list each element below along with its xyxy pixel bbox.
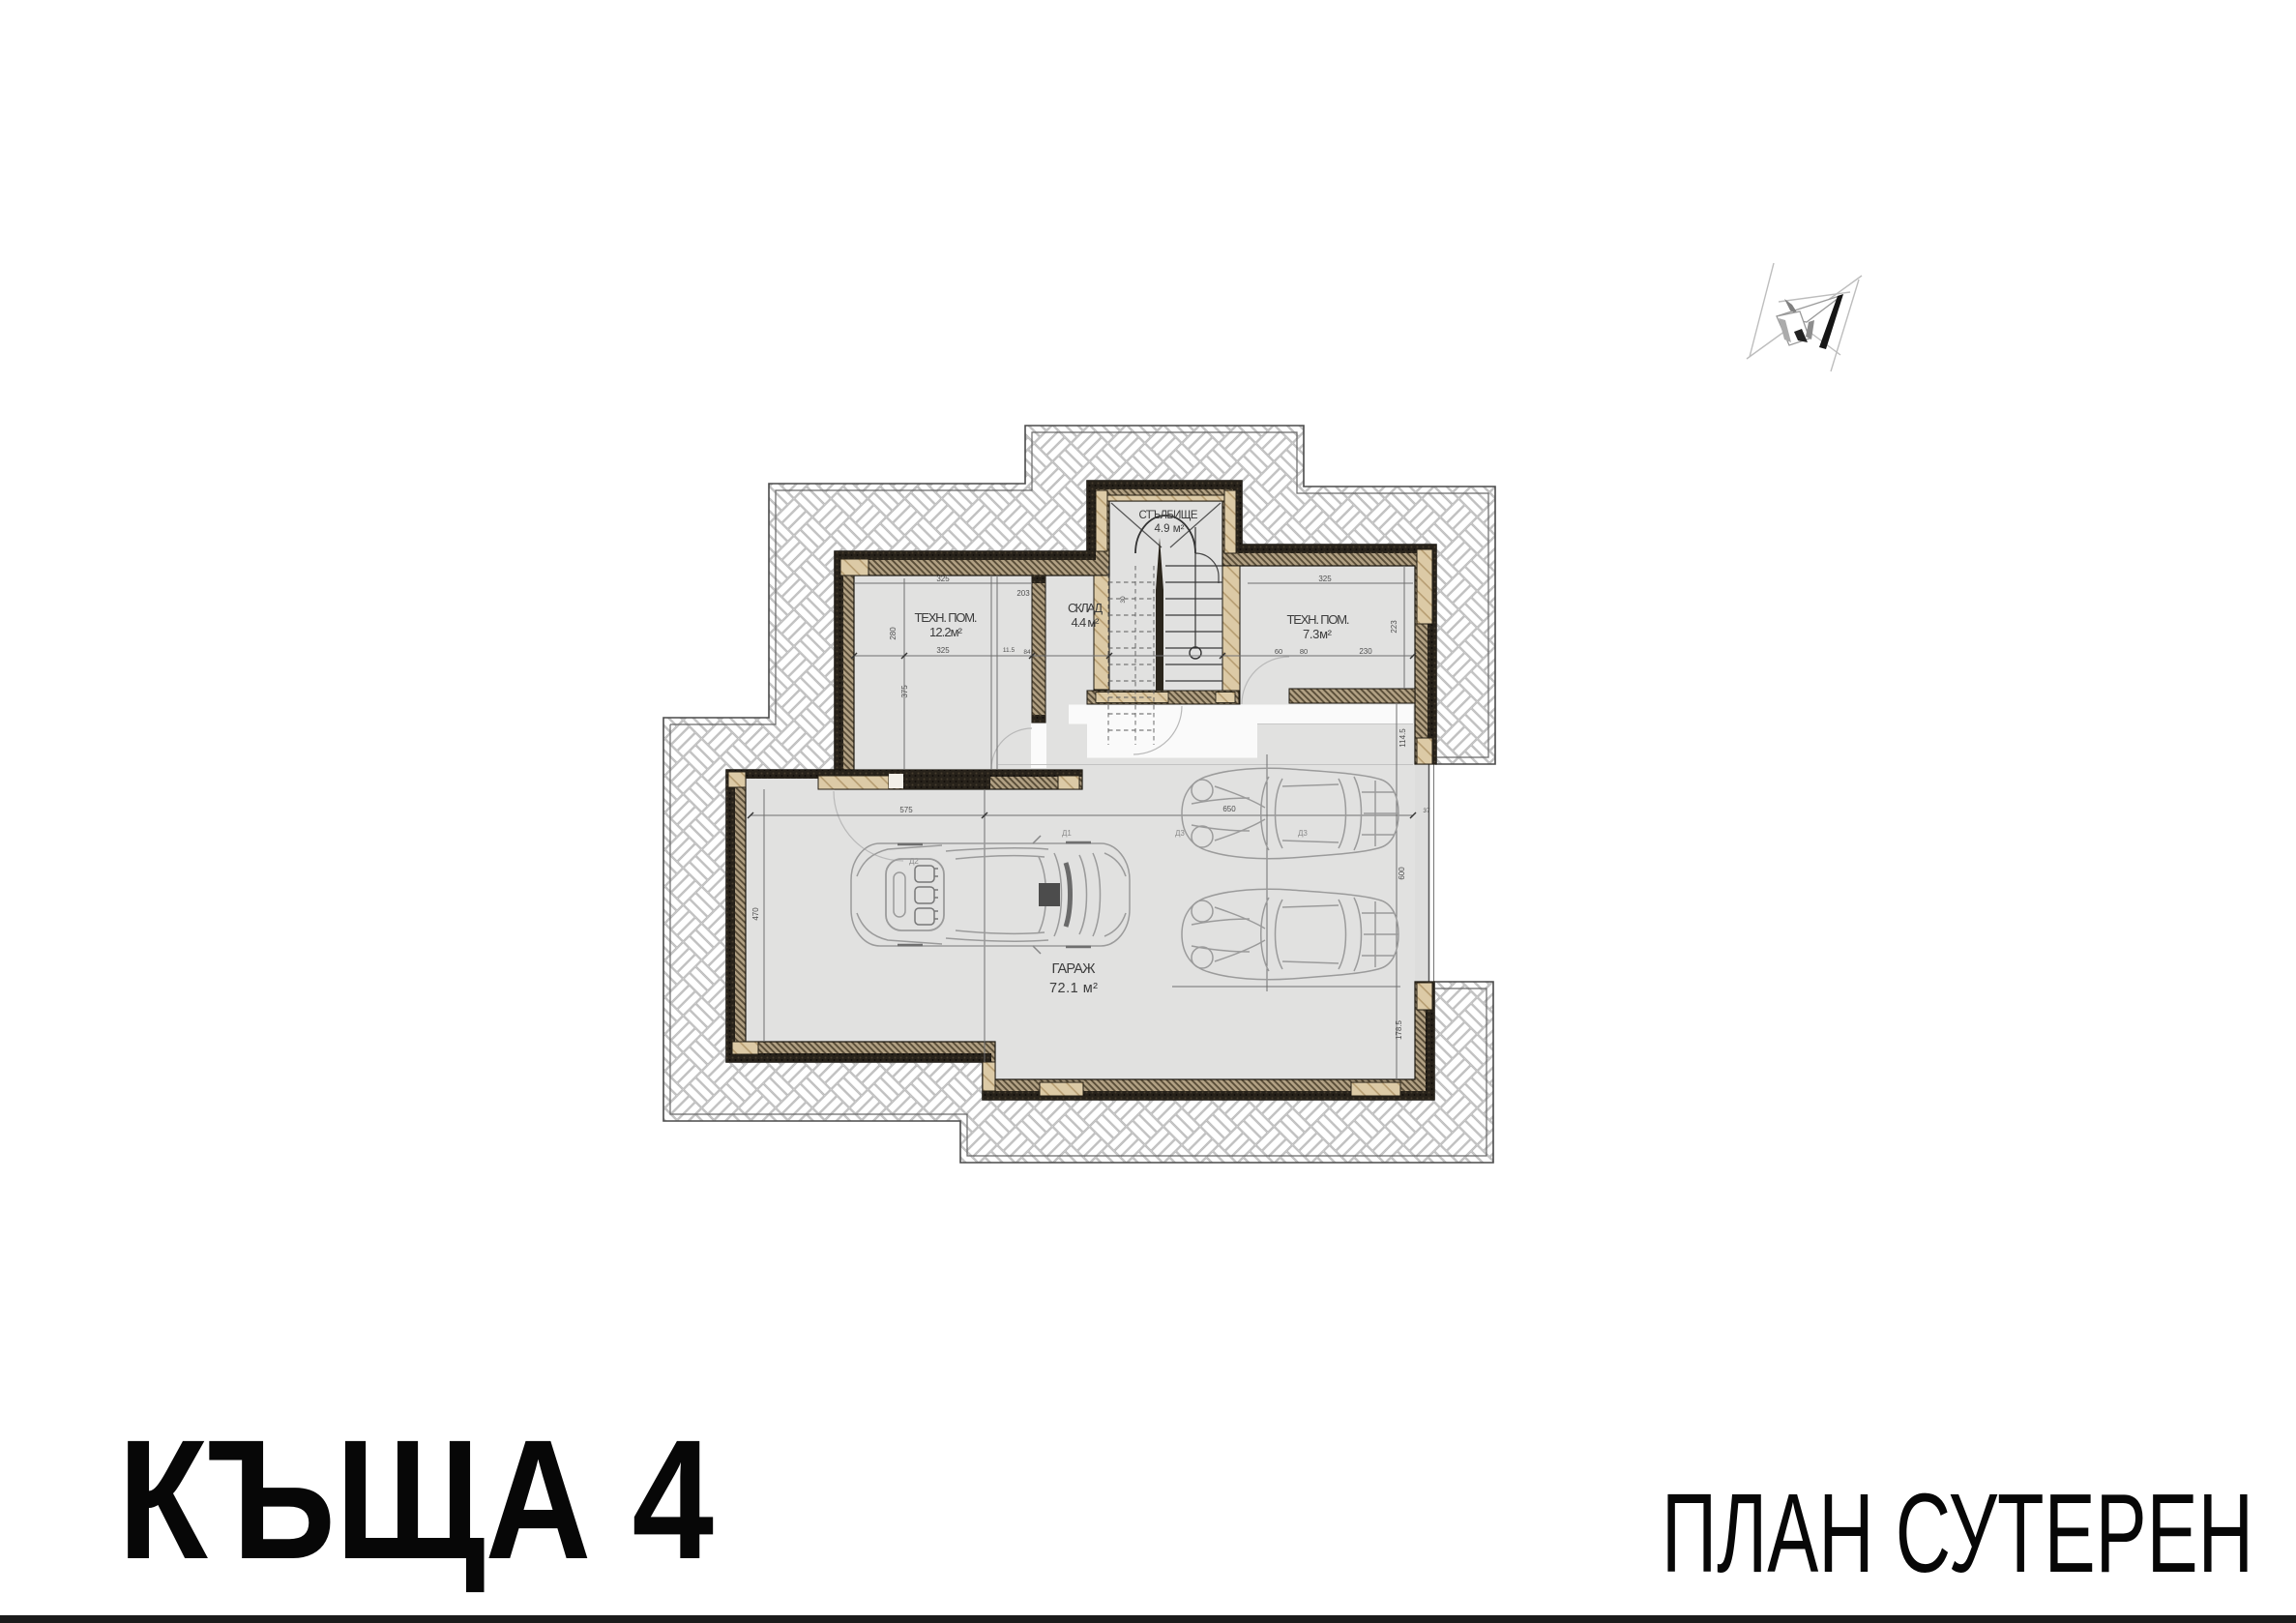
svg-text:60: 60 <box>1275 647 1282 656</box>
svg-text:12.2м²: 12.2м² <box>929 625 963 639</box>
svg-text:КЪЩА 4: КЪЩА 4 <box>118 1405 714 1595</box>
svg-text:575: 575 <box>899 806 913 814</box>
svg-text:325: 325 <box>1318 575 1332 583</box>
svg-text:Д3: Д3 <box>1175 829 1185 838</box>
svg-text:4.4 м²: 4.4 м² <box>1072 615 1101 630</box>
svg-text:11.5: 11.5 <box>1003 647 1016 654</box>
svg-text:ПЛАН СУТЕРЕН: ПЛАН СУТЕРЕН <box>1662 1470 2253 1596</box>
svg-text:178.5: 178.5 <box>1395 1019 1403 1040</box>
svg-text:223: 223 <box>1390 620 1398 634</box>
svg-text:114.5: 114.5 <box>1398 728 1407 748</box>
svg-text:СКЛАД: СКЛАД <box>1068 601 1103 615</box>
svg-text:325: 325 <box>936 646 950 655</box>
svg-text:650: 650 <box>1222 805 1236 813</box>
svg-text:7.3м²: 7.3м² <box>1303 627 1333 641</box>
svg-text:470: 470 <box>751 907 760 921</box>
svg-text:Д1: Д1 <box>1062 829 1072 838</box>
svg-text:72.1 м²: 72.1 м² <box>1049 981 1098 996</box>
svg-text:37: 37 <box>1423 808 1430 814</box>
svg-text:4.9 м²: 4.9 м² <box>1155 523 1185 535</box>
svg-text:600: 600 <box>1398 867 1406 880</box>
svg-text:230: 230 <box>1359 647 1372 656</box>
svg-text:СТЪЛБИЩЕ: СТЪЛБИЩЕ <box>1139 510 1198 521</box>
svg-text:375: 375 <box>900 685 909 698</box>
svg-text:ГАРАЖ: ГАРАЖ <box>1052 961 1097 977</box>
svg-text:ТЕХН. ПОМ.: ТЕХН. ПОМ. <box>915 610 978 625</box>
svg-text:280: 280 <box>889 627 898 640</box>
svg-text:ТЕХН. ПОМ.: ТЕХН. ПОМ. <box>1287 612 1350 627</box>
svg-text:30: 30 <box>1120 596 1127 604</box>
svg-text:325: 325 <box>936 575 950 583</box>
svg-text:84: 84 <box>1023 649 1031 656</box>
svg-text:Д3: Д3 <box>1298 829 1308 838</box>
svg-text:80: 80 <box>1300 647 1308 656</box>
svg-text:203: 203 <box>1016 589 1030 598</box>
